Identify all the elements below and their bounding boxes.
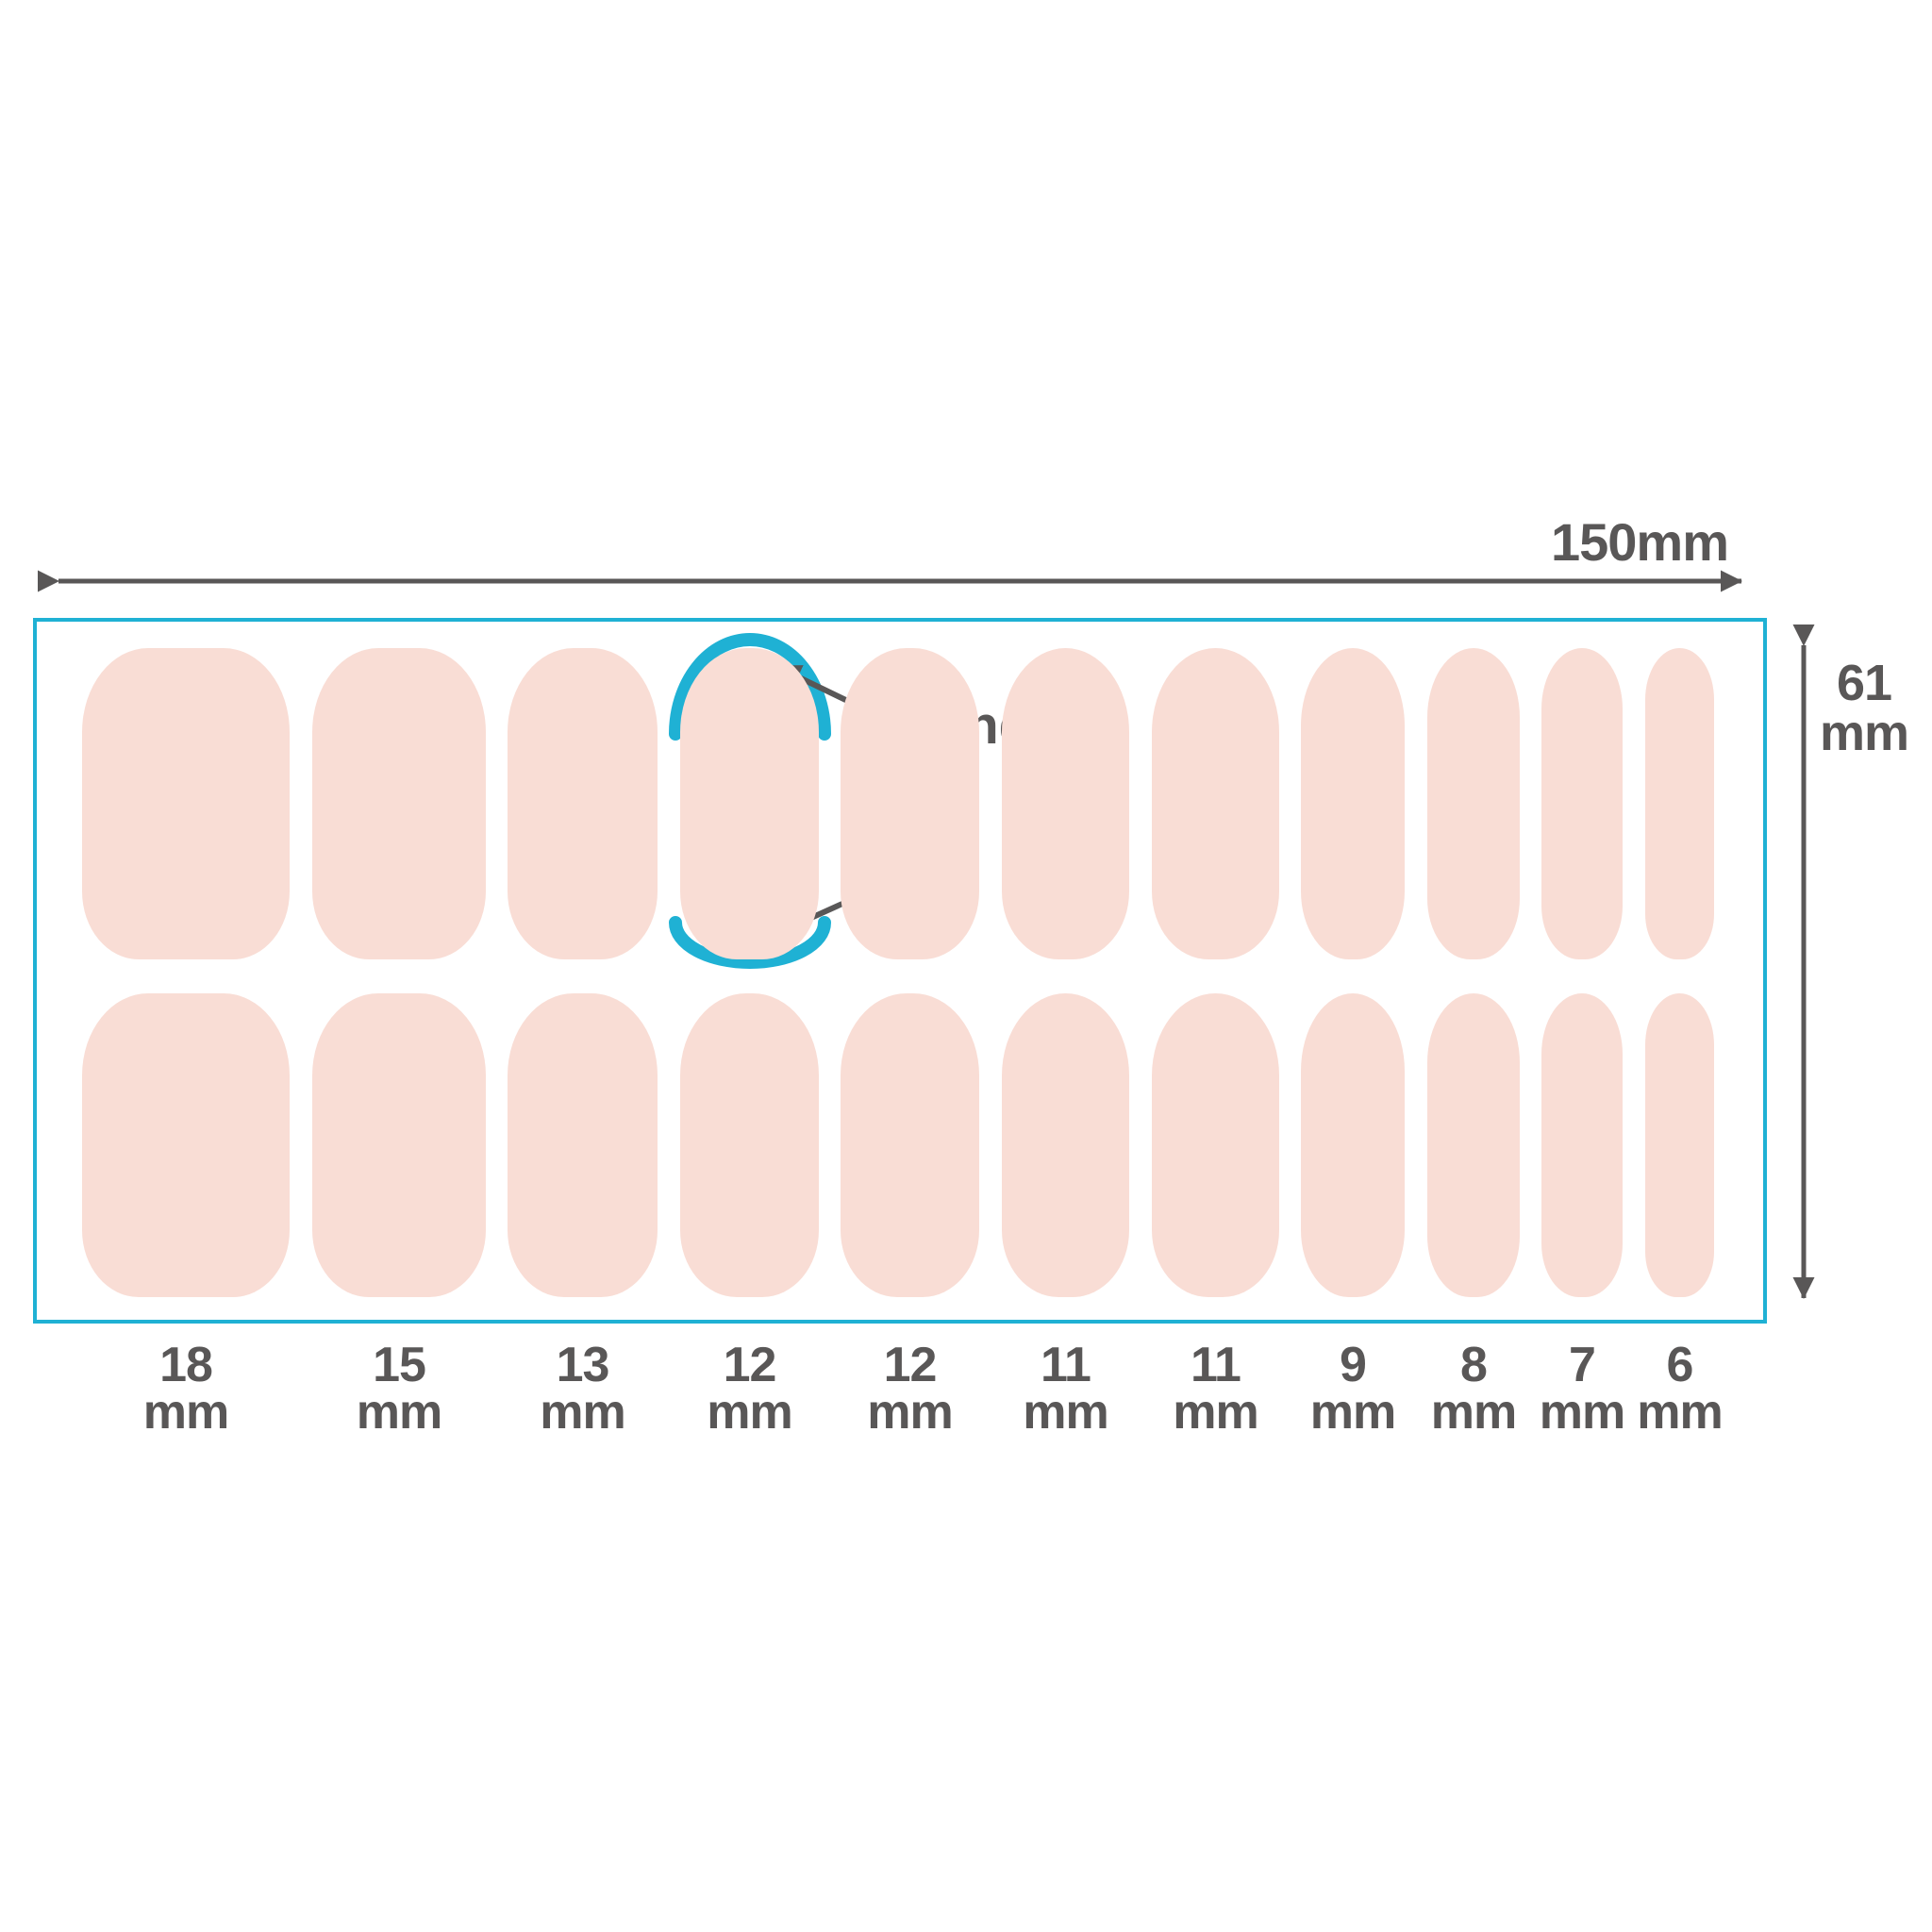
nail-width-unit: mm: [1141, 1389, 1291, 1436]
sheet-width-label: 150mm: [1453, 511, 1728, 573]
nail-width-label: 11mm: [991, 1341, 1141, 1436]
nail-sticker-bottom-row: [1427, 993, 1520, 1297]
nail-width-label: 12mm: [675, 1341, 825, 1436]
nail-width-unit: mm: [508, 1389, 658, 1436]
sheet-height-label: 61 mm: [1807, 658, 1921, 758]
nail-width-value: 18: [110, 1341, 261, 1389]
sheet-height-unit: mm: [1807, 708, 1921, 758]
nail-sticker-top-row: [680, 648, 819, 959]
nail-width-label: 15mm: [324, 1341, 475, 1436]
nail-sticker-top-row: [1541, 648, 1623, 959]
nail-sticker-top-row: [1645, 648, 1714, 959]
nail-width-value: 6: [1605, 1341, 1756, 1389]
nail-width-label: 13mm: [508, 1341, 658, 1436]
nail-sticker-bottom-row: [1002, 993, 1129, 1297]
nail-sticker-top-row: [82, 648, 290, 959]
nail-sticker-bottom-row: [1645, 993, 1714, 1297]
nail-width-value: 11: [991, 1341, 1141, 1389]
nail-sticker-bottom-row: [1301, 993, 1405, 1297]
nail-width-unit: mm: [675, 1389, 825, 1436]
nail-sticker-bottom-row: [1541, 993, 1623, 1297]
nail-width-value: 12: [675, 1341, 825, 1389]
nail-sticker-bottom-row: [82, 993, 290, 1297]
nail-sticker-bottom-row: [1152, 993, 1279, 1297]
nail-sticker-bottom-row: [841, 993, 979, 1297]
nail-sticker-top-row: [1427, 648, 1520, 959]
dimension-arrows-layer: [0, 0, 1932, 1932]
nail-sticker-bottom-row: [312, 993, 486, 1297]
nail-width-unit: mm: [1605, 1389, 1756, 1436]
nail-width-label: 12mm: [835, 1341, 986, 1436]
nail-sticker-top-row: [508, 648, 658, 959]
nail-sticker-bottom-row: [680, 993, 819, 1297]
nail-width-unit: mm: [835, 1389, 986, 1436]
nail-width-value: 12: [835, 1341, 986, 1389]
nail-width-label: 6mm: [1605, 1341, 1756, 1436]
nail-sticker-top-row: [841, 648, 979, 959]
nail-width-value: 15: [324, 1341, 475, 1389]
nail-width-unit: mm: [110, 1389, 261, 1436]
sheet-height-value: 61: [1807, 658, 1921, 708]
nail-width-unit: mm: [324, 1389, 475, 1436]
nail-width-unit: mm: [991, 1389, 1141, 1436]
nail-sticker-top-row: [1301, 648, 1405, 959]
nail-width-label: 18mm: [110, 1341, 261, 1436]
nail-width-value: 11: [1141, 1341, 1291, 1389]
nail-size-diagram: 150mm 61 mm 27 mm round flat 18mm15mm13m…: [0, 0, 1932, 1932]
nail-width-value: 13: [508, 1341, 658, 1389]
nail-sticker-top-row: [312, 648, 486, 959]
nail-sticker-top-row: [1152, 648, 1279, 959]
nail-sticker-top-row: [1002, 648, 1129, 959]
nail-sticker-bottom-row: [508, 993, 658, 1297]
nail-width-label: 11mm: [1141, 1341, 1291, 1436]
